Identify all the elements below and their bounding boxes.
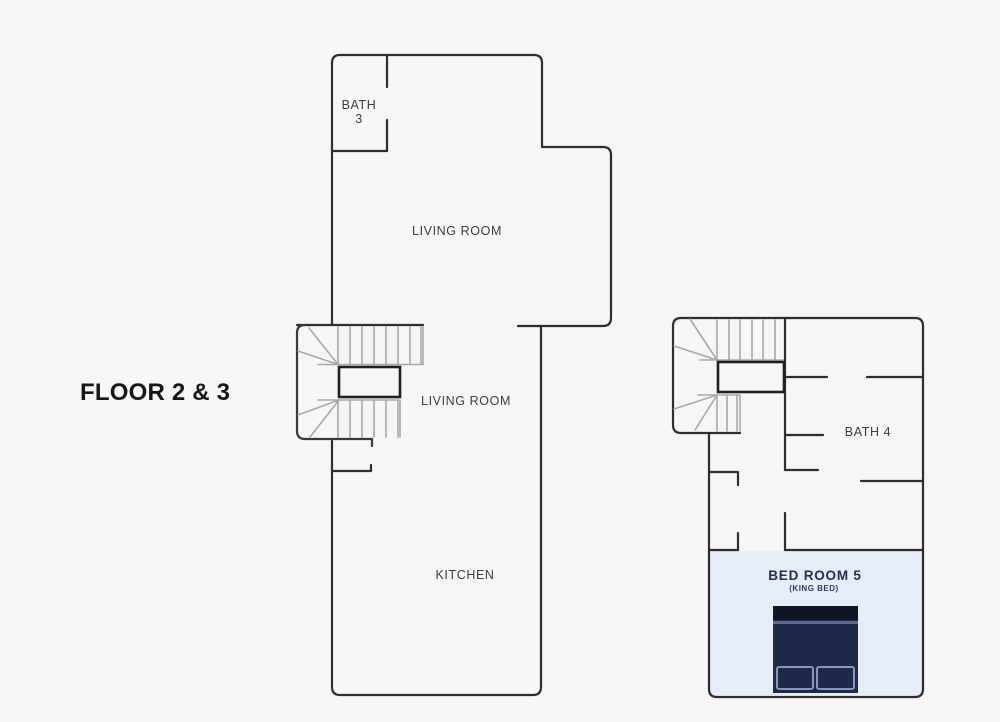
floor-title: FLOOR 2 & 3 xyxy=(80,379,230,406)
stair1-upper-winders xyxy=(298,328,338,365)
stair2-lower-winders xyxy=(674,395,717,430)
bed-headboard xyxy=(773,606,858,620)
floorplan-canvas: BATH 3 LIVING ROOM LIVING ROOM KITCHEN xyxy=(0,0,1000,722)
stair2-upper-winders xyxy=(674,319,717,360)
left-unit-wall-bumpout xyxy=(518,147,611,326)
staircase-right-unit xyxy=(674,319,784,431)
living-room-upper-label: LIVING ROOM xyxy=(412,224,502,238)
living-room-mid-label: LIVING ROOM xyxy=(421,394,511,408)
left-unit-wall-upper-outline xyxy=(332,55,542,325)
stair1-lower-winders xyxy=(298,400,339,437)
bed-pillow-left xyxy=(777,667,813,689)
king-bed-icon xyxy=(773,606,858,693)
bath3-label-line1: BATH xyxy=(342,98,377,112)
staircase-left-unit xyxy=(297,325,423,446)
stair1-doorway-stubs xyxy=(332,465,371,471)
stair1-lower-treads xyxy=(318,400,400,437)
kitchen-label: KITCHEN xyxy=(435,568,494,582)
bath3-label-line2: 3 xyxy=(355,112,363,126)
stair2-landing xyxy=(718,362,784,392)
bath4-stub-walls xyxy=(785,435,923,481)
bedroom5-sublabel: (KING BED) xyxy=(789,584,838,593)
right-unit: BATH 4 BED ROOM 5 (KING BED) xyxy=(673,318,923,697)
bedroom5-label: BED ROOM 5 xyxy=(768,568,862,583)
left-unit: BATH 3 LIVING ROOM LIVING ROOM KITCHEN xyxy=(297,55,611,695)
bed-pillow-right xyxy=(817,667,854,689)
floorplan-drawing: BATH 3 LIVING ROOM LIVING ROOM KITCHEN xyxy=(0,0,1000,722)
stair1-landing xyxy=(339,367,400,397)
stair2-lower-treads xyxy=(698,395,740,431)
right-unit-closet-stubs xyxy=(709,472,738,550)
bath4-label: BATH 4 xyxy=(845,425,891,439)
